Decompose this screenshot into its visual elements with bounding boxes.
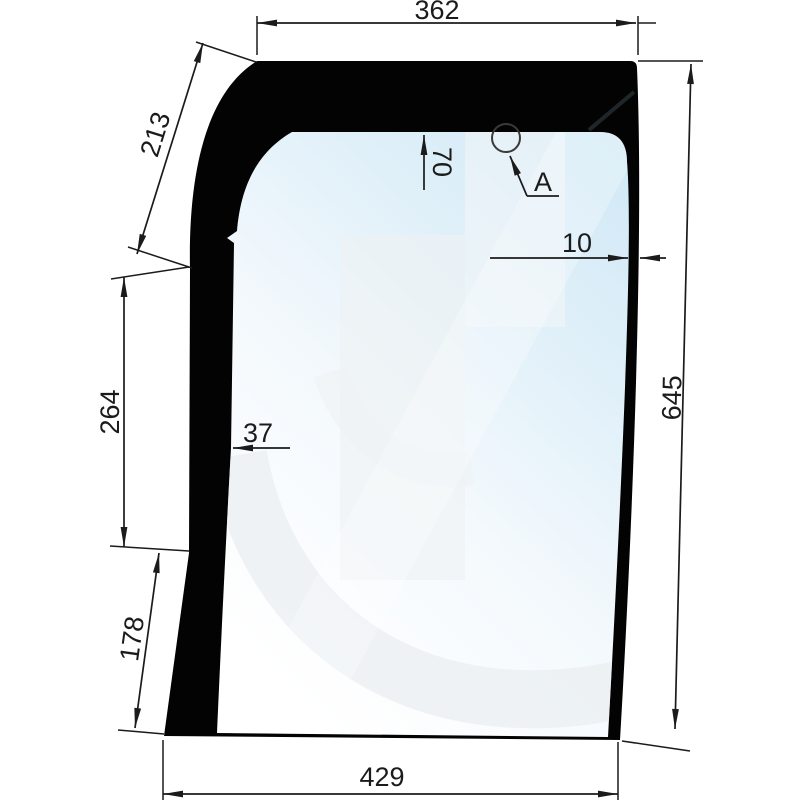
dim-label-37: 37 bbox=[243, 418, 273, 448]
glass-panel-drawing: 362 213 264 178 429 645 70 10 37 bbox=[0, 0, 800, 800]
dim-label-10: 10 bbox=[562, 228, 592, 258]
dim-label-70: 70 bbox=[427, 147, 457, 177]
dimension-left-lower: 178 bbox=[114, 553, 159, 728]
dim-label-213: 213 bbox=[134, 108, 176, 160]
dim-label-362: 362 bbox=[414, 0, 459, 25]
hole-label-A: A bbox=[534, 167, 552, 197]
dimension-left-upper: 264 bbox=[95, 277, 125, 547]
dimension-top-width: 362 bbox=[257, 0, 636, 25]
dim-label-645: 645 bbox=[656, 375, 687, 421]
dimension-bottom-width: 429 bbox=[163, 762, 618, 794]
glass-pane bbox=[217, 92, 648, 740]
dimension-right-height: 645 bbox=[656, 64, 691, 729]
dim-label-264: 264 bbox=[95, 389, 125, 434]
dim-label-178: 178 bbox=[114, 614, 150, 663]
drawing-canvas: 362 213 264 178 429 645 70 10 37 bbox=[0, 0, 800, 800]
dim-label-429: 429 bbox=[359, 762, 404, 792]
